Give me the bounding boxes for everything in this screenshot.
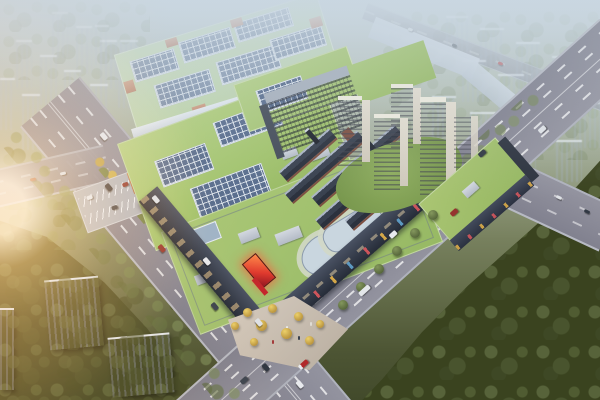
- tower-side: [362, 100, 370, 162]
- residential-tower: [374, 114, 408, 192]
- ghost-tower: [76, 26, 92, 74]
- pedestrian: [310, 322, 312, 326]
- tower-facade: [420, 102, 446, 195]
- street-tree: [338, 300, 348, 310]
- golden-tree: [305, 336, 314, 345]
- tower-side: [400, 118, 408, 186]
- ghost-tower: [556, 140, 582, 182]
- golden-tree: [268, 304, 277, 313]
- aerial-rendering: [0, 0, 600, 400]
- street-tree: [374, 264, 384, 274]
- rooftop-unit: [462, 181, 480, 198]
- golden-tree: [250, 338, 258, 346]
- pedestrian: [272, 340, 274, 344]
- ghost-tower: [0, 78, 15, 130]
- street-tree: [428, 210, 438, 220]
- golden-tree: [243, 308, 252, 317]
- tower-facade: [338, 100, 362, 166]
- residential-tower: [338, 96, 370, 168]
- golden-tree: [316, 320, 324, 328]
- tower-facade: [374, 118, 400, 190]
- golden-tree: [231, 322, 239, 330]
- street-tree: [392, 246, 402, 256]
- golden-tree: [294, 312, 303, 321]
- ghost-tower: [52, 12, 68, 58]
- street-tree: [410, 228, 420, 238]
- ghost-tower: [16, 40, 32, 88]
- solar-array: [154, 143, 214, 188]
- pedestrian: [298, 336, 300, 340]
- golden-tree: [281, 328, 292, 339]
